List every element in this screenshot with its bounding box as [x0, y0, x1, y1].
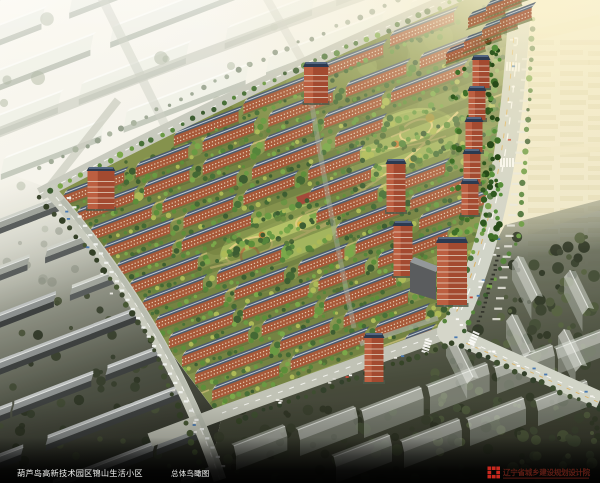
svg-text:总体鸟瞰图: 总体鸟瞰图: [171, 468, 210, 478]
svg-text:葫芦岛高新技术园区锦山生活小区: 葫芦岛高新技术园区锦山生活小区: [17, 468, 143, 478]
svg-text:辽宁省城乡建设规划设计院: 辽宁省城乡建设规划设计院: [503, 467, 591, 477]
